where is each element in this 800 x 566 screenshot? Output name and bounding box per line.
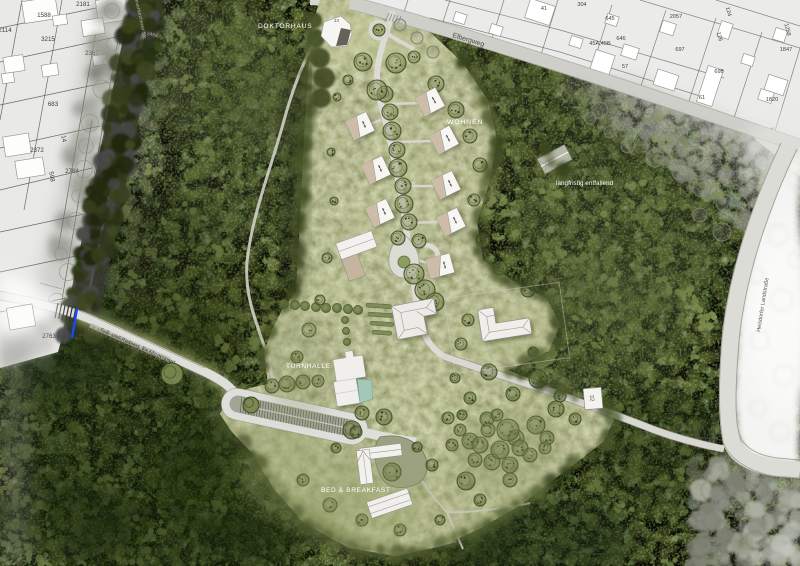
svg-text:BED & BREAKFAST: BED & BREAKFAST bbox=[321, 487, 390, 494]
svg-text:TURNHALLE: TURNHALLE bbox=[286, 363, 331, 370]
svg-text:WOHNEN: WOHNEN bbox=[447, 119, 483, 126]
svg-text:1588: 1588 bbox=[37, 12, 51, 19]
svg-text:698: 698 bbox=[714, 69, 723, 75]
svg-text:2763: 2763 bbox=[42, 333, 56, 340]
svg-text:61: 61 bbox=[699, 95, 705, 101]
svg-text:45A,45B: 45A,45B bbox=[589, 41, 611, 47]
svg-text:2114: 2114 bbox=[0, 27, 12, 34]
svg-text:41: 41 bbox=[541, 6, 547, 12]
svg-text:24: 24 bbox=[334, 18, 340, 23]
svg-text:3215: 3215 bbox=[41, 36, 55, 43]
svg-text:2057: 2057 bbox=[670, 14, 682, 20]
svg-text:2181: 2181 bbox=[76, 1, 90, 8]
svg-text:1820: 1820 bbox=[766, 97, 778, 103]
svg-text:683: 683 bbox=[48, 101, 59, 108]
svg-text:646: 646 bbox=[616, 36, 625, 42]
svg-text:DOKTORHAUS: DOKTORHAUS bbox=[258, 23, 312, 30]
svg-text:langfristig entfallend: langfristig entfallend bbox=[556, 180, 614, 187]
svg-text:32: 32 bbox=[588, 395, 595, 403]
svg-text:304: 304 bbox=[577, 2, 586, 8]
svg-text:697: 697 bbox=[675, 47, 684, 53]
svg-text:2372: 2372 bbox=[30, 147, 44, 154]
svg-text:1847: 1847 bbox=[780, 47, 792, 53]
svg-text:57: 57 bbox=[622, 64, 628, 70]
svg-text:645: 645 bbox=[605, 16, 614, 22]
